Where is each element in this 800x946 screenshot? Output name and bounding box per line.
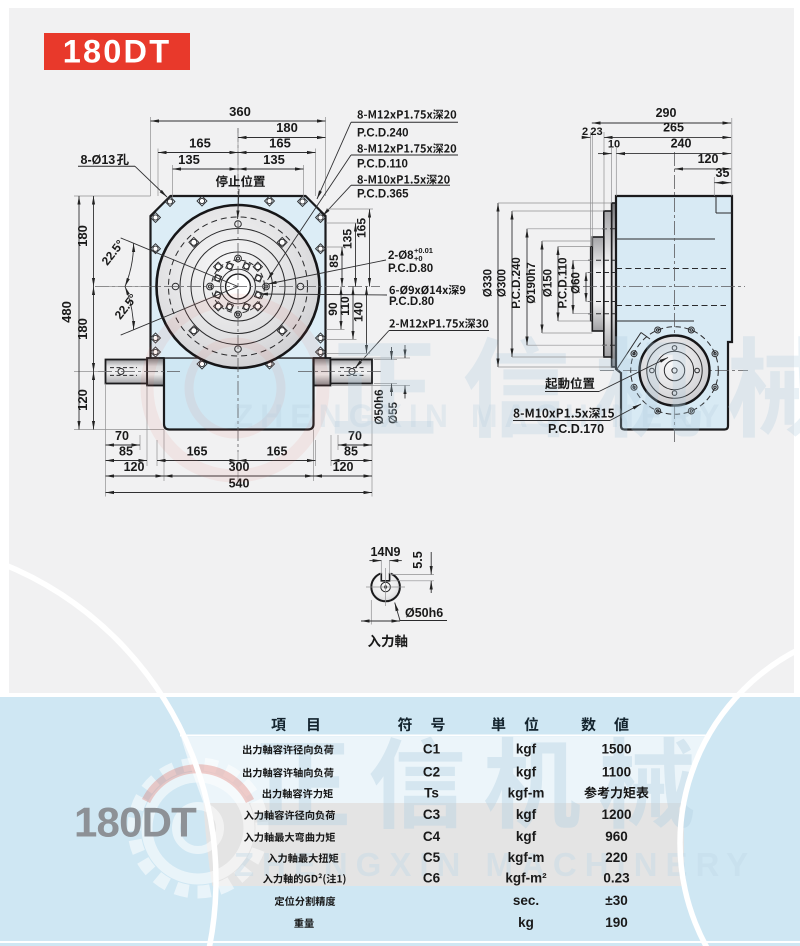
svg-text:C6: C6: [423, 871, 441, 886]
svg-text:165: 165: [355, 218, 369, 238]
svg-text:P.C.D.80: P.C.D.80: [389, 296, 434, 308]
svg-text:kgf-m: kgf-m: [508, 850, 545, 865]
svg-text:135: 135: [178, 152, 200, 167]
svg-text:180DT: 180DT: [74, 799, 197, 846]
svg-text:135: 135: [263, 152, 285, 167]
svg-text:220: 220: [605, 850, 628, 865]
svg-text:5.5: 5.5: [411, 551, 425, 568]
svg-text:35: 35: [716, 166, 730, 180]
svg-text:C5: C5: [423, 850, 441, 865]
svg-text:120: 120: [333, 460, 354, 474]
svg-text:190: 190: [605, 915, 628, 930]
svg-text:C3: C3: [423, 807, 441, 822]
svg-text:P.C.D.240: P.C.D.240: [511, 257, 523, 309]
svg-text:Ts: Ts: [424, 786, 439, 801]
svg-text:110: 110: [338, 296, 352, 316]
svg-text:14N9: 14N9: [371, 545, 401, 559]
svg-text:kgf-m: kgf-m: [508, 786, 545, 801]
svg-text:180: 180: [75, 318, 90, 340]
svg-text:1500: 1500: [601, 742, 631, 757]
svg-text:Ø190h7: Ø190h7: [526, 262, 538, 304]
svg-text:120: 120: [75, 389, 90, 411]
svg-text:480: 480: [59, 301, 74, 323]
svg-text:P.C.D.170: P.C.D.170: [548, 422, 604, 436]
svg-text:265: 265: [663, 121, 684, 135]
svg-text:120: 120: [698, 152, 719, 166]
svg-text:C2: C2: [423, 765, 440, 780]
svg-text:2: 2: [582, 126, 588, 138]
svg-text:Ø50h6: Ø50h6: [405, 606, 443, 620]
svg-text:kgf: kgf: [516, 742, 537, 757]
svg-text:+0: +0: [414, 254, 423, 263]
svg-text:85: 85: [344, 445, 358, 459]
svg-text:960: 960: [605, 829, 628, 844]
svg-text:±30: ±30: [605, 893, 627, 908]
svg-text:P.C.D.240: P.C.D.240: [357, 128, 409, 140]
svg-text:C1: C1: [423, 742, 441, 757]
svg-text:240: 240: [671, 137, 692, 151]
svg-text:140: 140: [352, 302, 366, 322]
svg-text:290: 290: [656, 106, 677, 120]
svg-text:180DT: 180DT: [63, 34, 172, 70]
svg-text:P.C.D.110: P.C.D.110: [558, 258, 570, 309]
svg-text:Ø150: Ø150: [543, 269, 555, 297]
svg-text:P.C.D.365: P.C.D.365: [357, 189, 409, 201]
svg-text:P.C.D.110: P.C.D.110: [357, 159, 408, 171]
svg-text:C4: C4: [423, 829, 441, 844]
svg-text:85: 85: [119, 445, 133, 459]
svg-text:kgf-m²: kgf-m²: [505, 871, 547, 886]
svg-text:0.23: 0.23: [603, 871, 630, 886]
svg-text:23: 23: [590, 126, 602, 138]
svg-text:Ø330: Ø330: [483, 269, 495, 297]
svg-text:10: 10: [608, 139, 620, 151]
svg-text:135: 135: [341, 229, 355, 249]
svg-text:1200: 1200: [601, 807, 631, 822]
svg-text:Ø300: Ø300: [497, 269, 509, 297]
svg-text:165: 165: [269, 136, 291, 151]
svg-text:Ø60: Ø60: [571, 272, 583, 294]
svg-text:360: 360: [229, 104, 251, 119]
svg-text:180: 180: [276, 120, 298, 135]
svg-text:ZHENGXIN MACHINERY: ZHENGXIN MACHINERY: [234, 398, 727, 434]
svg-text:kgf: kgf: [516, 829, 537, 844]
svg-text:120: 120: [124, 460, 145, 474]
svg-text:2-Ø8: 2-Ø8: [388, 250, 414, 262]
svg-text:sec.: sec.: [513, 893, 539, 908]
svg-text:85: 85: [327, 254, 341, 268]
svg-text:kgf: kgf: [516, 807, 537, 822]
svg-text:70: 70: [115, 429, 129, 443]
svg-text:1100: 1100: [602, 765, 631, 780]
svg-text:kgf: kgf: [516, 765, 537, 780]
svg-text:180: 180: [75, 225, 90, 247]
svg-text:P.C.D.80: P.C.D.80: [388, 263, 433, 275]
svg-text:8-Ø13: 8-Ø13: [81, 153, 116, 167]
svg-text:165: 165: [189, 136, 211, 151]
svg-text:kg: kg: [518, 915, 534, 930]
